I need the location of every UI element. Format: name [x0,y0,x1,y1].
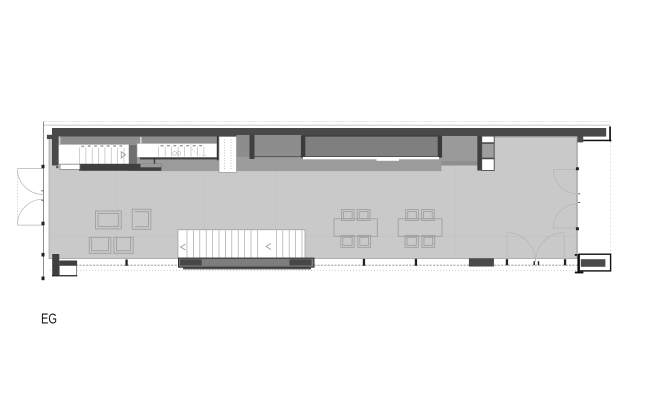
svg-text:EG: EG [41,312,57,328]
